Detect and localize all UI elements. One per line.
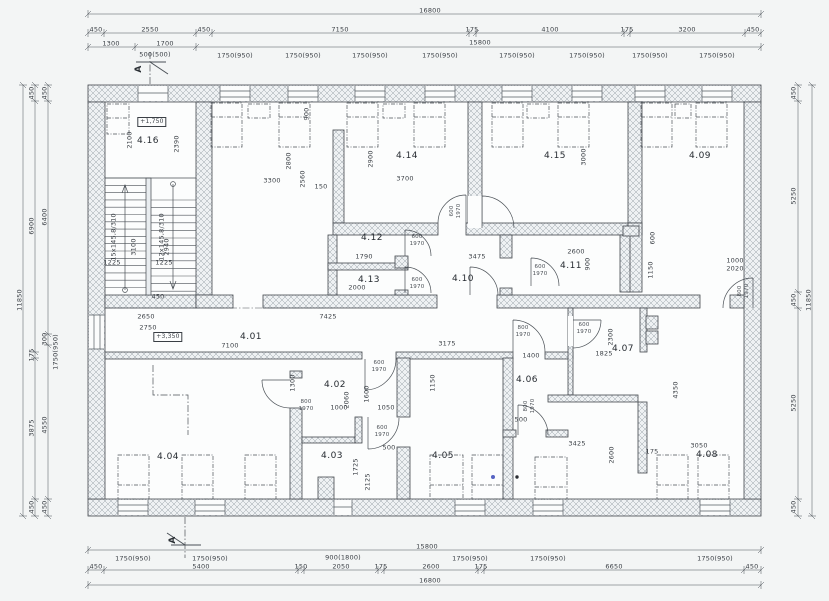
dim-text: 1050	[377, 404, 394, 411]
dim-text: 450	[28, 500, 35, 513]
dim-text: 450	[89, 26, 102, 33]
dim-text: 175	[474, 563, 487, 570]
dim-text: 150	[294, 563, 307, 570]
dim-text: 1790	[355, 253, 372, 260]
dim-text: 5400	[192, 563, 209, 570]
wall-405-406	[503, 358, 513, 499]
dim-text: 5250	[790, 394, 797, 411]
dim-text: 450	[89, 563, 102, 570]
dim-text: 3475	[468, 253, 485, 260]
corridor-south-wall	[105, 352, 362, 359]
french-door	[334, 500, 352, 515]
dim-text: 2650	[137, 313, 154, 320]
room-label: 4.04	[157, 453, 179, 463]
dim-text: 1970	[456, 204, 462, 219]
window	[572, 86, 602, 101]
dim-text: 900(1800)	[325, 554, 361, 561]
dim-text: 2050	[332, 563, 349, 570]
dim-text: 6650	[605, 563, 622, 570]
dim-text: 1825	[595, 350, 612, 357]
dim-text: 600	[449, 205, 455, 216]
dim-text: 450	[790, 293, 797, 306]
outer-wall-left	[88, 102, 105, 499]
dim-text: 2900	[367, 150, 374, 167]
window	[635, 86, 665, 101]
dim-text: 800	[523, 400, 529, 411]
wall-407-east	[640, 308, 647, 352]
dim-text: 1750(950)	[285, 52, 321, 59]
corridor-north-wall	[196, 295, 233, 308]
dim-text: 1750(950)	[632, 52, 668, 59]
window	[89, 315, 104, 349]
dim-text: 7150	[331, 26, 348, 33]
dim-text: 1400	[522, 352, 539, 359]
dim-text: 450	[41, 500, 48, 513]
dim-text: 450	[151, 293, 164, 300]
dim-text: 3200	[678, 26, 695, 33]
shaft	[318, 477, 334, 499]
wall-408-divider	[638, 402, 647, 473]
dim-text: 1750(950)	[422, 52, 458, 59]
dim-text: 2100	[126, 131, 133, 148]
dim-text: 1750(950)	[530, 555, 566, 562]
dim-text: 1970	[372, 367, 387, 373]
dim-text: 300	[41, 332, 48, 345]
dim-text: 1150	[647, 261, 654, 278]
dim-text: 450	[41, 86, 48, 99]
window	[425, 86, 455, 101]
dim-text: 175	[620, 26, 633, 33]
window	[700, 500, 730, 515]
dim-text: 500	[514, 416, 527, 423]
dim-text: 450	[746, 26, 759, 33]
door-gap	[468, 196, 482, 228]
corridor-north-wall	[730, 295, 744, 308]
duct	[623, 226, 639, 236]
partition	[333, 130, 344, 223]
section-label: A	[169, 536, 179, 543]
dim-text: 2800	[285, 152, 292, 169]
dim-text: 1970	[530, 399, 536, 414]
room-label: 4.10	[452, 275, 474, 285]
dim-text: 2600	[422, 563, 439, 570]
wall-410-411	[500, 288, 512, 295]
dim-text: 2600	[608, 446, 615, 463]
dim-text: 1750(950)	[115, 555, 151, 562]
dim-text: 2600	[567, 248, 584, 255]
dim-text: 2125	[364, 473, 371, 490]
window	[702, 86, 732, 101]
dim-text: 16800	[419, 7, 441, 14]
room-label: 4.05	[432, 452, 454, 462]
window	[138, 86, 168, 101]
dim-text: 1600	[363, 385, 370, 402]
plan-linework	[0, 0, 829, 601]
section-label: A	[135, 65, 145, 72]
window	[288, 86, 318, 101]
dim-text: 2390	[173, 135, 180, 152]
room-label: 4.02	[324, 381, 346, 391]
dim-text: 1750(950)	[352, 52, 388, 59]
dim-text: 2550	[141, 26, 158, 33]
dim-text: 900	[303, 107, 310, 120]
dim-text: 3100	[130, 238, 137, 255]
wall-403-405	[397, 358, 410, 417]
dim-text: 1750(950)	[699, 52, 735, 59]
dim-text: 175	[465, 26, 478, 33]
outer-wall-right	[744, 102, 761, 499]
dim-text: 500(500)	[139, 51, 171, 58]
dim-text: 6400	[41, 208, 48, 225]
dim-text: 2750	[139, 324, 156, 331]
dim-text: 4350	[672, 381, 679, 398]
dim-text: 1970	[577, 329, 592, 335]
dim-text: 1970	[410, 284, 425, 290]
duct	[646, 316, 658, 329]
wall-406-south	[546, 430, 568, 437]
outer-wall-bottom	[88, 499, 761, 516]
dim-text: 5250	[790, 187, 797, 204]
dim-text: 3875	[28, 419, 35, 436]
dim-text: 1300	[289, 374, 296, 391]
corridor-north-wall	[263, 295, 437, 308]
floor-plan-sheet: 1680045025504507150175410017532004501300…	[0, 0, 829, 601]
room-label: 4.11	[560, 262, 582, 272]
dim-text: 1725	[352, 458, 359, 475]
dim-text: 15x145,8/310	[110, 213, 117, 261]
dim-text: 800	[300, 399, 311, 405]
dim-text: 1970	[516, 332, 531, 338]
dim-text: 4100	[541, 26, 558, 33]
dim-text: 1970	[410, 241, 425, 247]
dim-text: 3300	[263, 177, 280, 184]
dim-text: 450	[28, 86, 35, 99]
dim-text: 600	[534, 264, 545, 270]
dim-text: 1750(950)	[52, 334, 59, 370]
dim-text: 1970	[375, 432, 390, 438]
dim-text: 15800	[416, 543, 438, 550]
dim-text: 1150	[429, 374, 436, 391]
dim-text: 600	[376, 425, 387, 431]
door-gap	[568, 316, 573, 346]
dim-text: 12x145,8/310	[158, 213, 165, 261]
stair-spine-wall	[146, 178, 151, 295]
room-label: 4.08	[696, 451, 718, 461]
dim-text: 175	[374, 563, 387, 570]
dim-text: 150	[314, 183, 327, 190]
dim-text: 7100	[221, 342, 238, 349]
room-label: 4.15	[544, 152, 566, 162]
corridor-north-wall	[497, 295, 700, 308]
room-label: 4.03	[321, 452, 343, 462]
room-label: 4.09	[689, 152, 711, 162]
pen-mark	[491, 475, 495, 479]
wall-407-south	[548, 395, 638, 402]
corridor-south-wall	[396, 352, 513, 359]
window	[195, 500, 225, 515]
dim-text: 4550	[41, 416, 48, 433]
dim-text: 3175	[438, 340, 455, 347]
window	[355, 86, 385, 101]
dim-text: 1970	[744, 284, 750, 299]
window	[220, 86, 250, 101]
dim-text: 1750(950)	[697, 555, 733, 562]
dim-text: 1750(950)	[217, 52, 253, 59]
room-label: 4.06	[516, 376, 538, 386]
dim-text: 3000	[580, 148, 587, 165]
wall-412-east	[395, 256, 408, 268]
dim-text: 600	[649, 231, 656, 244]
duct	[646, 331, 658, 344]
dim-text: 500	[382, 444, 395, 451]
dim-text: 7425	[319, 313, 336, 320]
dim-text: 3050	[690, 442, 707, 449]
dim-text: 600	[411, 234, 422, 240]
dim-text: 450	[197, 26, 210, 33]
dim-text: 175	[28, 348, 35, 361]
dim-text: 800	[737, 285, 743, 296]
dim-text: 6900	[28, 217, 35, 234]
dim-text: 600	[578, 322, 589, 328]
wall-vestibule	[355, 417, 362, 443]
window	[533, 500, 563, 515]
dim-text: 600	[411, 277, 422, 283]
dim-text: 450	[790, 86, 797, 99]
pen-mark	[515, 475, 518, 478]
dim-text: 11850	[805, 289, 812, 311]
wall-415-409	[628, 102, 642, 223]
window	[118, 500, 148, 515]
level-marker: +3,350	[153, 332, 182, 342]
dim-text: 1970	[533, 271, 548, 277]
window	[455, 500, 485, 515]
dim-text: 900	[584, 257, 591, 270]
dim-text: 3425	[568, 440, 585, 447]
level-marker: +1,750	[137, 117, 166, 127]
wall-under-top-rooms	[466, 223, 642, 235]
dim-text: 800	[517, 325, 528, 331]
stair-east-wall	[196, 102, 212, 295]
dim-text: 11850	[16, 289, 23, 311]
dim-text: 1750(950)	[499, 52, 535, 59]
dim-text: 175	[645, 448, 658, 455]
wall-406-south	[503, 430, 516, 437]
room-label: 4.16	[137, 137, 159, 147]
dim-text: 2560	[299, 170, 306, 187]
wall-vestibule	[302, 437, 355, 443]
room-label: 4.14	[396, 152, 418, 162]
room-label: 4.07	[612, 345, 634, 355]
window	[502, 86, 532, 101]
wall-410-411	[500, 235, 512, 258]
dim-text: 600	[373, 360, 384, 366]
dim-text: 1750(950)	[569, 52, 605, 59]
room-label: 4.01	[240, 333, 262, 343]
dim-text: 450	[790, 500, 797, 513]
wall-411-east	[620, 235, 630, 292]
wall-404-east	[290, 408, 302, 499]
dim-text: 1000	[330, 404, 347, 411]
dim-text: 1970	[299, 406, 314, 412]
dim-text: 16800	[419, 577, 441, 584]
dim-text: 3700	[396, 175, 413, 182]
dim-text: 1300	[102, 40, 119, 47]
room-label: 4.12	[361, 234, 383, 244]
dim-text: 450	[745, 563, 758, 570]
dim-text: 15800	[469, 39, 491, 46]
wall-413-east	[395, 290, 408, 295]
dim-text: 2020	[726, 265, 743, 272]
room-label: 4.13	[358, 276, 380, 286]
dim-text: 1700	[156, 40, 173, 47]
wall-403-405	[397, 447, 410, 499]
